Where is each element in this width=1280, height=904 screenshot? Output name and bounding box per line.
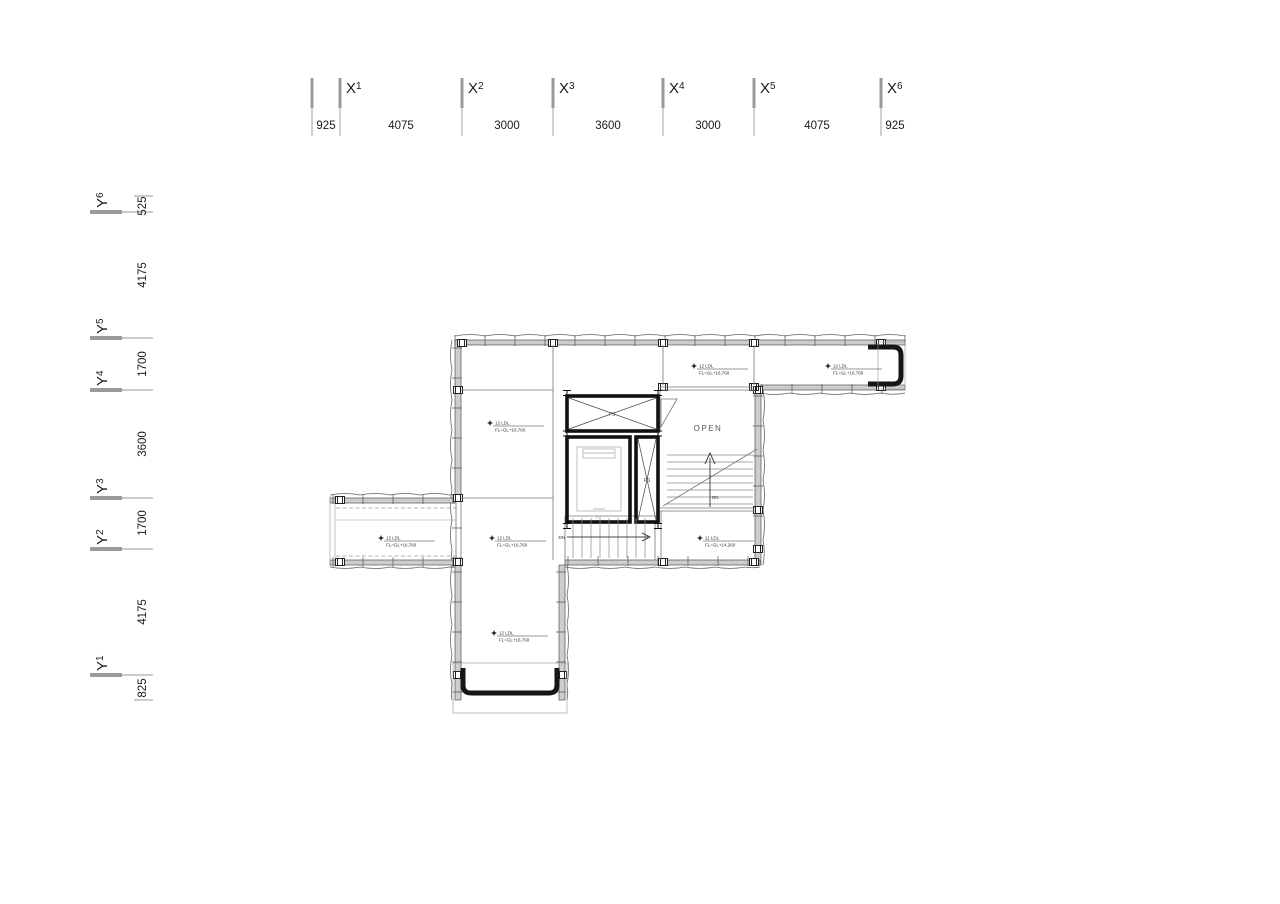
room-label: 11 LDL FL=GL+14,260 (697, 535, 754, 548)
x-grid-label: X3 (559, 80, 575, 97)
level-marker-icon (487, 420, 493, 426)
y-grid-label: Y4 (94, 370, 111, 386)
pipe-shaft-label: PS (644, 478, 651, 484)
svg-text:12 LDL: 12 LDL (495, 421, 510, 426)
level-marker-icon (491, 630, 497, 636)
x-dimension: 3000 (695, 120, 721, 132)
x-grid-label: X1 (346, 80, 362, 97)
x-grid-ruler: X1 X2 X3 X4 X5 X6 925 4075 3000 3600 300… (311, 78, 905, 136)
elevator-car: EV (577, 447, 621, 520)
svg-text:12 LDL: 12 LDL (833, 364, 848, 369)
room-label: 12 LDL FL=GL+16,760 (489, 535, 546, 548)
y-grid-labels: Y6 Y5 Y4 Y3 Y2 Y1 (94, 192, 111, 671)
room-label: 12 LDL FL=GL+16,760 (825, 363, 882, 376)
y-dimensions: 525 4175 1700 3600 1700 4175 825 (137, 196, 149, 697)
svg-text:FL=GL+14,260: FL=GL+14,260 (705, 543, 736, 548)
west-wing-roof-lines (336, 508, 457, 556)
room-label: 12 LDL FL=GL+16,760 (691, 363, 748, 376)
floor-plan-drawing: X1 X2 X3 X4 X5 X6 925 4075 3000 3600 300… (0, 0, 1280, 904)
y-dimension: 3600 (137, 431, 149, 457)
level-marker-icon (697, 535, 703, 541)
south-end-cap-wall (463, 668, 557, 693)
south-end-cap-outline (453, 663, 567, 713)
y-grid-label: Y3 (94, 478, 111, 494)
y-grid-label: Y2 (94, 529, 111, 545)
top-shaft-label: PS (609, 412, 616, 418)
y-dimension: 1700 (137, 510, 149, 536)
svg-text:12 LDL: 12 LDL (699, 364, 714, 369)
x-dimension: 3000 (494, 120, 520, 132)
level-marker-icon (691, 363, 697, 369)
stair-down-label: DN (712, 495, 719, 500)
x-grid-label: X2 (468, 80, 484, 97)
floor-plan: PS PS EV (330, 335, 905, 714)
door-swing (661, 399, 677, 427)
svg-text:FL=GL+16,760: FL=GL+16,760 (497, 543, 528, 548)
svg-text:FL=GL+16,760: FL=GL+16,760 (699, 371, 730, 376)
svg-text:12 LDL: 12 LDL (386, 536, 401, 541)
stair-right: DN (663, 449, 757, 507)
x-grid-label: X6 (887, 80, 903, 97)
svg-text:11 LDL: 11 LDL (705, 536, 720, 541)
level-marker-icon (825, 363, 831, 369)
x-grid-labels: X1 X2 X3 X4 X5 X6 (346, 80, 903, 97)
level-marker-icon (489, 535, 495, 541)
room-label: 12 LDL FL=GL+16,760 (487, 420, 544, 433)
room-label: 12 LDL FL=GL+16,760 (491, 630, 548, 643)
y-dimension: 4175 (137, 262, 149, 288)
x-dimension: 3600 (595, 120, 621, 132)
svg-text:FL=GL+16,760: FL=GL+16,760 (386, 543, 417, 548)
y-grid-label: Y6 (94, 192, 111, 208)
x-grid-label: X4 (669, 80, 685, 97)
svg-text:FL=GL+16,760: FL=GL+16,760 (833, 371, 864, 376)
room-label: 12 LDL FL=GL+16,760 (378, 535, 435, 548)
x-dimension: 4075 (388, 120, 414, 132)
column-symbols (336, 340, 886, 679)
x-dimensions: 925 4075 3000 3600 3000 4075 925 (316, 120, 904, 132)
stair-bottom: DN (559, 518, 651, 558)
y-dimension: 825 (137, 678, 149, 697)
y-dimension: 1700 (137, 351, 149, 377)
interior-partitions (461, 345, 755, 560)
x-dimension: 4075 (804, 120, 830, 132)
svg-text:FL=GL+16,760: FL=GL+16,760 (495, 428, 526, 433)
stair-down-label: DN (559, 535, 566, 540)
svg-text:FL=GL+16,760: FL=GL+16,760 (499, 638, 530, 643)
x-grid-label: X5 (760, 80, 776, 97)
elevator-label: EV (596, 515, 602, 520)
east-end-cap-wall (868, 347, 901, 384)
y-grid-label: Y1 (94, 655, 111, 671)
y-dimension: 525 (137, 196, 149, 215)
open-void-label: OPEN (694, 424, 723, 433)
y-grid-label: Y5 (94, 318, 111, 334)
x-dimension: 925 (316, 120, 335, 132)
x-dimension: 925 (885, 120, 904, 132)
svg-text:12 LDL: 12 LDL (499, 631, 514, 636)
y-dimension: 4175 (137, 599, 149, 625)
y-grid-ruler: Y6 Y5 Y4 Y3 Y2 Y1 525 4175 1700 3600 170… (90, 192, 153, 700)
level-marker-icon (378, 535, 384, 541)
svg-text:12 LDL: 12 LDL (497, 536, 512, 541)
